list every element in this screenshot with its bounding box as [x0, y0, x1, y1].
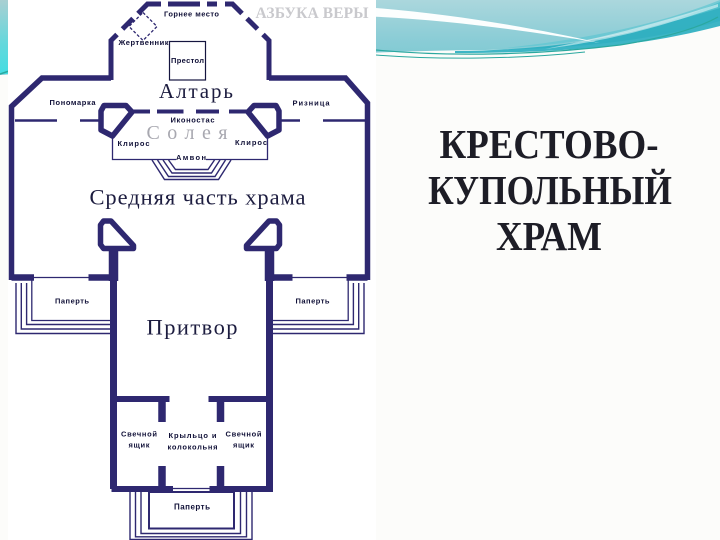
svg-text:Жертвенник: Жертвенник: [118, 38, 169, 47]
svg-text:Престол: Престол: [171, 56, 204, 65]
svg-text:Солея: Солея: [147, 122, 234, 144]
svg-text:Свечной: Свечной: [226, 430, 262, 439]
svg-text:Паперть: Паперть: [174, 503, 210, 512]
svg-text:Ризница: Ризница: [293, 99, 331, 108]
svg-text:колокольня: колокольня: [168, 443, 218, 452]
svg-text:Притвор: Притвор: [147, 315, 238, 340]
svg-text:Средняя часть храма: Средняя часть храма: [90, 185, 306, 210]
svg-text:Крыльцо и: Крыльцо и: [169, 431, 217, 440]
svg-text:ящик: ящик: [129, 441, 150, 450]
svg-text:ящик: ящик: [233, 441, 254, 450]
svg-text:Горнее место: Горнее место: [164, 10, 219, 19]
svg-text:Клирос: Клирос: [118, 139, 150, 148]
svg-text:Паперть: Паперть: [55, 297, 89, 306]
svg-text:Паперть: Паперть: [296, 297, 330, 306]
svg-text:АЗБУКА ВЕРЫ: АЗБУКА ВЕРЫ: [256, 5, 371, 22]
svg-text:Свечной: Свечной: [121, 430, 157, 439]
svg-text:Пономарка: Пономарка: [50, 98, 97, 107]
svg-text:Амвон: Амвон: [176, 153, 206, 162]
svg-text:Клирос: Клирос: [235, 138, 267, 147]
